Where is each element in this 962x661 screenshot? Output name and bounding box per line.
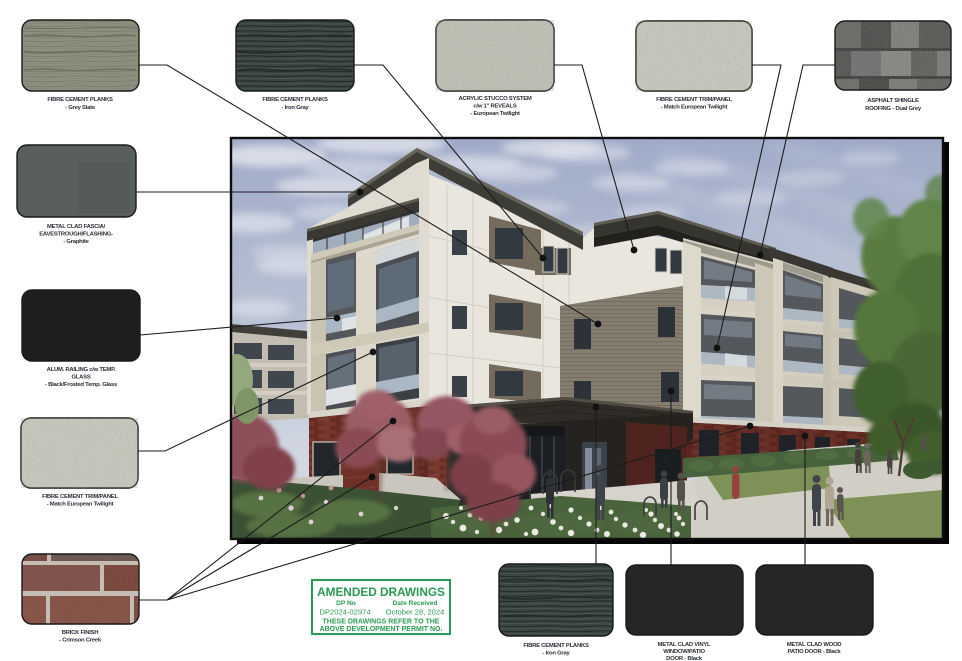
svg-text:ROOFING - Dual Grey: ROOFING - Dual Grey <box>865 106 922 112</box>
svg-text:- Grey Slate: - Grey Slate <box>65 105 96 111</box>
svg-text:AMENDED DRAWINGS: AMENDED DRAWINGS <box>317 585 445 599</box>
svg-text:BRICK FINISH: BRICK FINISH <box>62 630 99 636</box>
svg-text:FIBRE CEMENT PLANKS: FIBRE CEMENT PLANKS <box>47 97 113 103</box>
svg-text:THESE DRAWINGS REFER TO THE: THESE DRAWINGS REFER TO THE <box>323 619 440 626</box>
svg-text:EAVESTROUGH/FLASHING-: EAVESTROUGH/FLASHING- <box>39 232 113 238</box>
svg-text:DOOR - Black: DOOR - Black <box>666 656 703 661</box>
svg-text:ASPHALT SHINGLE: ASPHALT SHINGLE <box>867 98 919 104</box>
svg-text:ALUM. RAILING c/w TEMP.: ALUM. RAILING c/w TEMP. <box>47 367 116 373</box>
svg-text:c/w 1" REVEALS: c/w 1" REVEALS <box>473 104 516 110</box>
svg-text:- European Twilight: - European Twilight <box>470 111 520 117</box>
svg-text:- Match European Twilight: - Match European Twilight <box>47 502 114 508</box>
svg-text:- Crimson Creek: - Crimson Creek <box>59 638 102 644</box>
svg-text:- Graphite: - Graphite <box>63 239 89 245</box>
svg-text:FIBRE CEMENT PLANKS: FIBRE CEMENT PLANKS <box>262 97 328 103</box>
svg-text:- Match European Twilight: - Match European Twilight <box>661 105 728 111</box>
svg-text:FIBRE CEMENT TRIM/PANEL: FIBRE CEMENT TRIM/PANEL <box>656 97 732 103</box>
svg-text:ACRYLIC STUCCO SYSTEM: ACRYLIC STUCCO SYSTEM <box>458 96 531 102</box>
svg-text:- Black/Frosted Temp. Glass: - Black/Frosted Temp. Glass <box>45 382 118 388</box>
svg-text:Date Received: Date Received <box>392 600 437 607</box>
svg-text:DP2024-02974: DP2024-02974 <box>319 608 370 617</box>
svg-text:FIBRE CEMENT TRIM/PANEL: FIBRE CEMENT TRIM/PANEL <box>42 494 118 500</box>
svg-text:METAL CLAD VINYL: METAL CLAD VINYL <box>658 642 711 648</box>
svg-text:METAL CLAD FASCIA/: METAL CLAD FASCIA/ <box>47 224 106 230</box>
svg-text:WINDOW/PATIO: WINDOW/PATIO <box>663 649 705 655</box>
svg-text:- Iron Gray: - Iron Gray <box>542 651 570 657</box>
svg-text:PATIO DOOR - Black: PATIO DOOR - Black <box>788 649 842 655</box>
svg-text:METAL CLAD WOOD: METAL CLAD WOOD <box>787 642 842 648</box>
svg-text:- Iron Gray: - Iron Gray <box>281 105 309 111</box>
svg-text:October 28, 2024: October 28, 2024 <box>386 608 445 617</box>
svg-text:DP No: DP No <box>336 600 356 607</box>
svg-text:ABOVE DEVELOPMENT PERMIT NO.: ABOVE DEVELOPMENT PERMIT NO. <box>320 626 443 633</box>
svg-text:FIBRE CEMENT PLANKS: FIBRE CEMENT PLANKS <box>523 643 589 649</box>
svg-text:GLASS: GLASS <box>71 375 90 381</box>
